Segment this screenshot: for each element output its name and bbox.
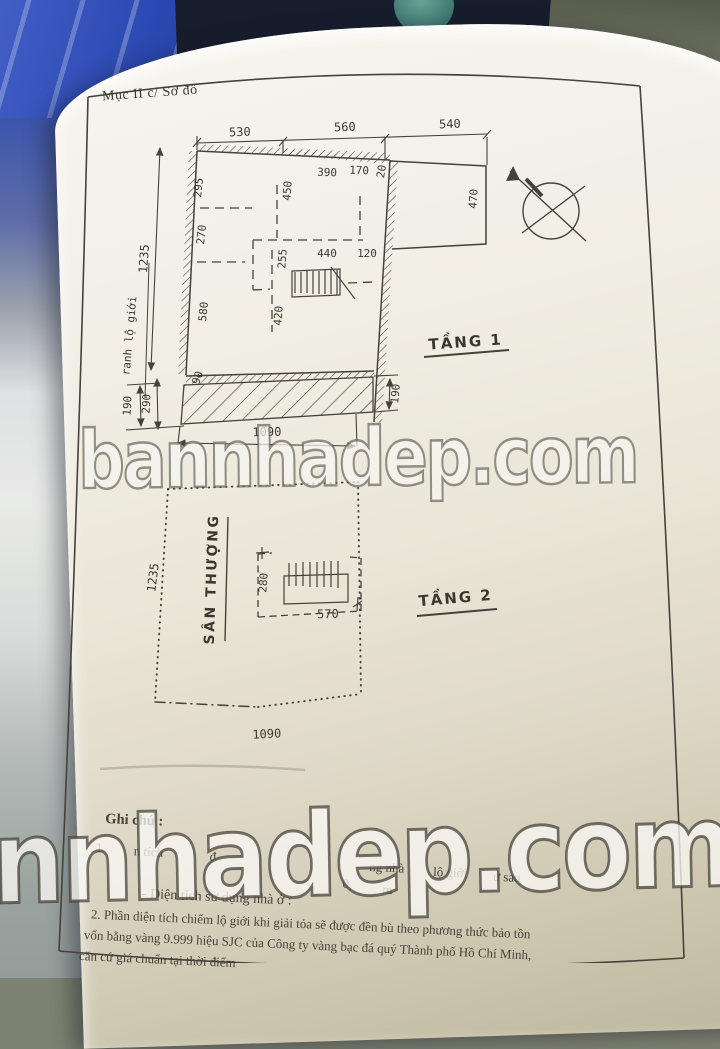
notes-heading: Ghi chú : <box>105 811 164 831</box>
dim-label: 255 <box>275 248 289 269</box>
dim-label: 470 <box>466 188 480 209</box>
dim-label: 270 <box>194 224 209 245</box>
dim-label: 280 <box>256 572 270 593</box>
dim-label: 560 <box>334 120 356 135</box>
dim-label: 290 <box>139 394 153 415</box>
floor1-title: TẦNG 1 <box>428 327 504 353</box>
north-arrow-icon <box>506 166 586 241</box>
floor1-plan: 530 560 540 1235 ranh lộ giới 295 270 58… <box>120 117 586 446</box>
dim-label: 120 <box>357 247 377 260</box>
dim-label: 1235 <box>136 244 152 274</box>
boundary-line <box>145 263 149 398</box>
dim-label: 190 <box>388 383 403 404</box>
terrace-label: SÂN THƯỢNG <box>201 513 223 644</box>
dim-label: 295 <box>191 177 206 198</box>
note-item1-fragment: m <box>382 882 393 898</box>
notes-section: Ghi chú : 1. n tích đ ng nhà lộ giới ư s… <box>76 802 673 999</box>
dim-label: 530 <box>229 125 251 140</box>
boundary-label: ranh lộ giới <box>120 296 140 376</box>
smudge-mark <box>100 766 305 770</box>
dim-label: 390 <box>317 166 337 180</box>
note-item1-fragment: lộ giới <box>433 864 468 882</box>
note-item1-fragment: n tích <box>133 843 163 860</box>
floor1-bottom-left-dims <box>126 379 184 430</box>
note-item1-number: 1. <box>96 840 106 856</box>
floor2-stairs <box>284 561 348 604</box>
floor1-left-dim <box>151 148 160 370</box>
dim-label: 20 <box>374 164 389 179</box>
terrace-underline <box>225 517 228 641</box>
dim-label: 440 <box>317 247 337 260</box>
dim-label: 570 <box>317 607 339 621</box>
floor1-setback-strip <box>181 377 373 424</box>
dim-label: 450 <box>280 180 294 201</box>
dim-label: 540 <box>439 117 461 132</box>
dim-label: 1090 <box>252 726 282 741</box>
note-item1-fragment: đ <box>209 849 216 865</box>
dim-label: 1090 <box>252 425 281 440</box>
dim-label: 420 <box>271 305 285 326</box>
floor2-plan: 1235 SÂN THƯỢNG 280 570 1090 TẦNG 2 <box>100 482 497 770</box>
floor1-stairs <box>292 267 355 299</box>
dim-label: 580 <box>196 301 211 322</box>
note-usage-line: - Diện tích sử dụng nhà ở : <box>141 887 291 910</box>
dim-label: 190 <box>120 396 134 417</box>
note-item2-line: căn cứ giá chuẩn tại thời điểm <box>79 948 236 971</box>
dim-label: 1235 <box>144 562 161 592</box>
floor2-title-underline <box>417 609 497 616</box>
note-item1-fragment: 0, <box>342 876 352 892</box>
note-item1-fragment: ng nhà <box>369 859 405 877</box>
dim-label: 170 <box>349 164 369 178</box>
note-item1-fragment: ư sau <box>493 869 521 886</box>
floor2-title: TẦNG 2 <box>417 583 493 610</box>
